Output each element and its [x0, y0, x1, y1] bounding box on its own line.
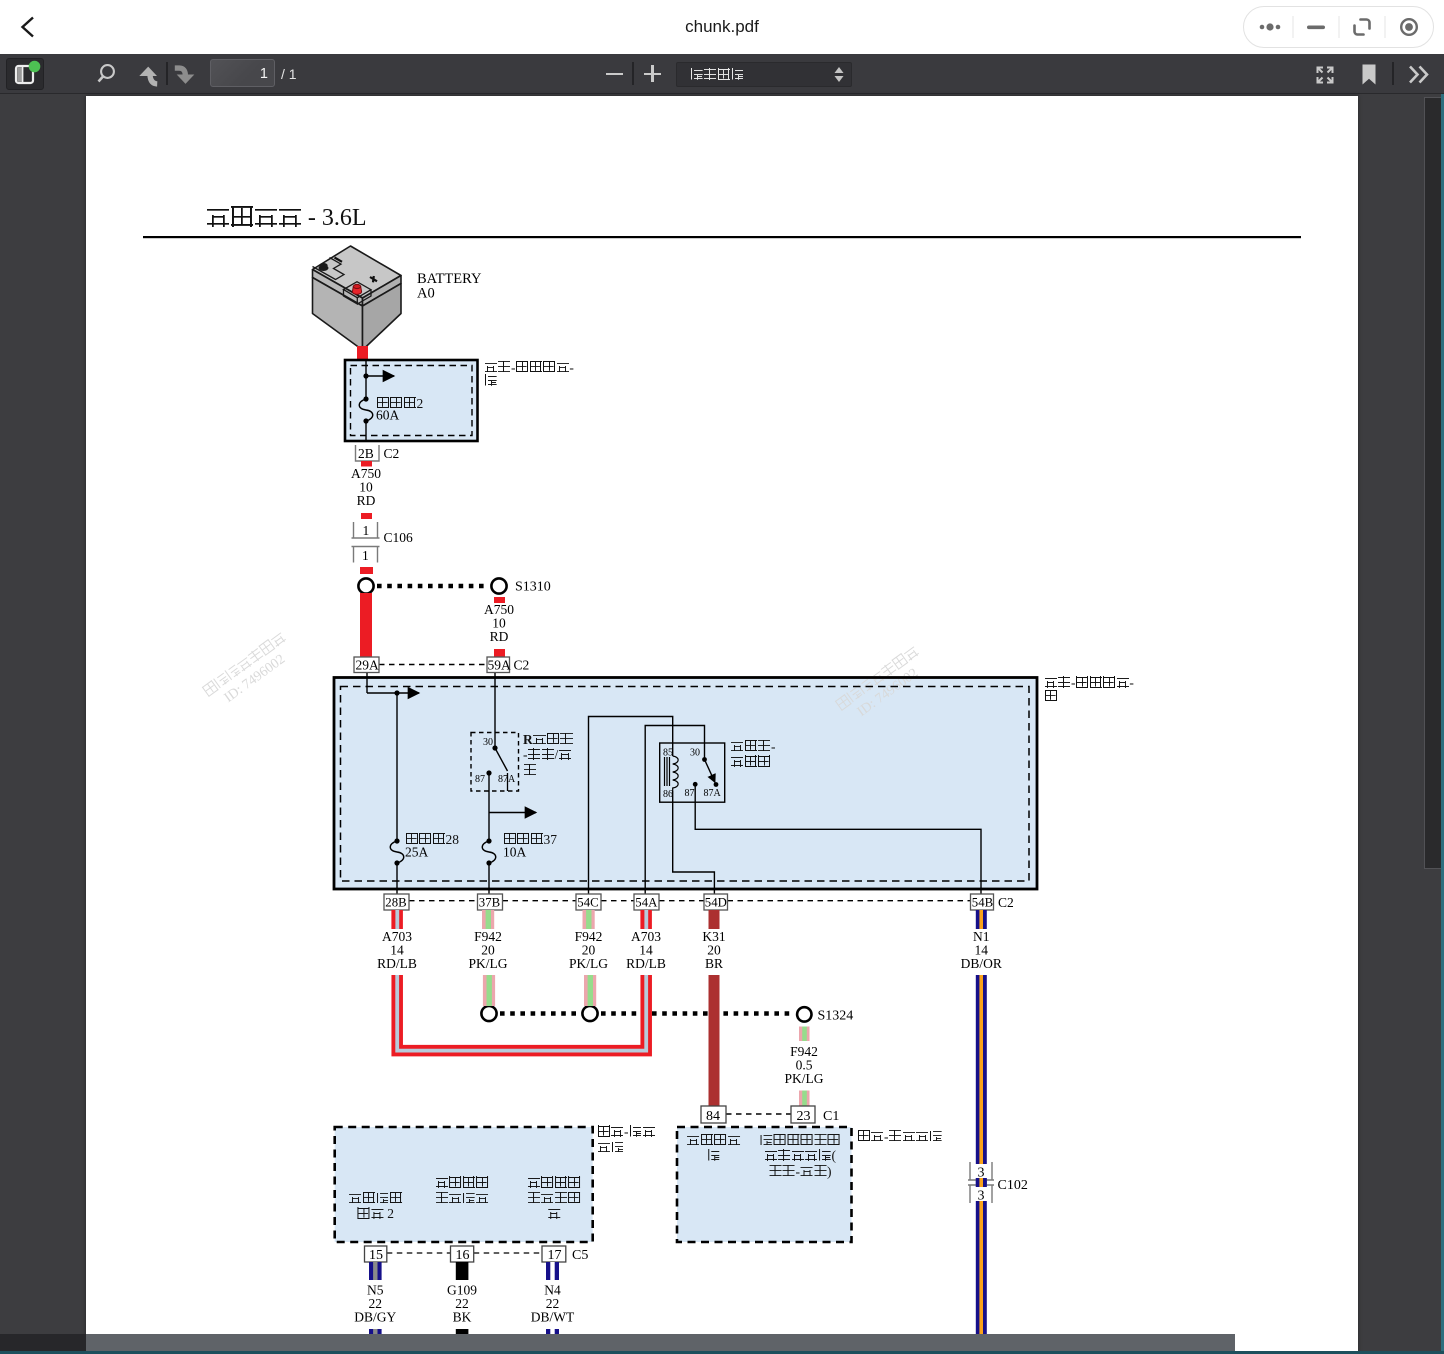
svg-text:C102: C102 — [998, 1178, 1028, 1193]
svg-text:54A: 54A — [635, 896, 658, 910]
svg-text:DB/GY: DB/GY — [354, 1310, 396, 1325]
svg-text:17: 17 — [548, 1248, 562, 1263]
svg-text:1: 1 — [363, 523, 370, 538]
svg-text:84: 84 — [706, 1109, 720, 1124]
svg-text:23: 23 — [797, 1109, 811, 1124]
svg-text:16: 16 — [456, 1248, 470, 1263]
svg-text:S1324: S1324 — [818, 1009, 854, 1024]
svg-text:C2: C2 — [384, 446, 400, 461]
svg-text:85: 85 — [663, 748, 673, 759]
svg-text:S1310: S1310 — [515, 580, 551, 595]
svg-text:A0: A0 — [417, 286, 435, 302]
svg-text:PK/LG: PK/LG — [569, 956, 608, 971]
svg-text:C5: C5 — [572, 1248, 588, 1263]
svg-text:BK: BK — [453, 1310, 472, 1325]
svg-text:3: 3 — [978, 1189, 985, 1204]
svg-text:37B: 37B — [479, 896, 500, 910]
svg-text:RD: RD — [357, 493, 376, 508]
svg-text:1: 1 — [362, 548, 369, 563]
svg-text:2B: 2B — [358, 446, 374, 461]
svg-text:DB/OR: DB/OR — [961, 956, 1002, 971]
svg-text:C2: C2 — [514, 658, 530, 673]
svg-text:59A: 59A — [488, 658, 512, 673]
svg-text:87A: 87A — [704, 788, 722, 799]
svg-text:87: 87 — [475, 774, 485, 785]
svg-text:87: 87 — [685, 788, 695, 799]
svg-text:86: 86 — [663, 789, 673, 800]
svg-text:28B: 28B — [385, 896, 406, 910]
svg-text:DB/WT: DB/WT — [531, 1310, 575, 1325]
svg-text:30: 30 — [483, 737, 493, 748]
svg-text:BR: BR — [705, 956, 723, 971]
svg-text:54B: 54B — [972, 896, 993, 910]
svg-text:3: 3 — [978, 1166, 985, 1181]
svg-text:15: 15 — [369, 1248, 383, 1263]
svg-text:54D: 54D — [705, 896, 727, 910]
svg-text:C1: C1 — [823, 1109, 839, 1124]
svg-text:C106: C106 — [384, 530, 414, 545]
svg-text:RD/LB: RD/LB — [626, 956, 666, 971]
svg-text:30: 30 — [690, 748, 700, 759]
svg-text:RD/LB: RD/LB — [377, 956, 417, 971]
svg-text:29A: 29A — [356, 658, 380, 673]
svg-text:C2: C2 — [998, 895, 1014, 910]
svg-text:RD: RD — [490, 629, 509, 644]
svg-text:54C: 54C — [577, 896, 598, 910]
svg-text:PK/LG: PK/LG — [784, 1071, 823, 1086]
svg-text:PK/LG: PK/LG — [468, 956, 507, 971]
